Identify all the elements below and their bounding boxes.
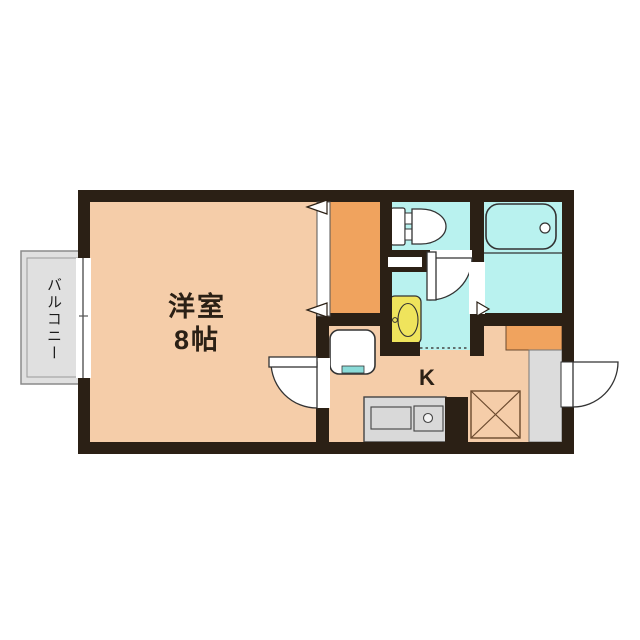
kitchen-counter-icon	[364, 397, 446, 442]
main-room-label: 洋室 8帖	[117, 291, 277, 357]
balcony-label: バルコニー	[44, 264, 64, 374]
main-room-label-line1: 洋室	[117, 291, 277, 324]
wall-counter-stub	[445, 397, 468, 442]
wall-washroom-stub	[380, 342, 420, 356]
washing-machine-pan-icon	[330, 330, 375, 374]
wall-closet-toilet	[380, 190, 392, 356]
kitchen-label: K	[407, 365, 447, 391]
entrance-floor	[529, 350, 562, 442]
wall-inset	[388, 257, 422, 267]
floor-plan-drawing	[0, 0, 640, 640]
wall-bottom	[78, 442, 574, 454]
washbasin-icon	[389, 296, 421, 344]
main-room-label-line2: 8帖	[117, 324, 277, 357]
toilet-icon	[391, 208, 446, 245]
floor-plan-page: 洋室 8帖 K バルコニー	[0, 0, 640, 640]
window	[76, 258, 91, 378]
wall-below-bathroom	[470, 313, 574, 326]
shoe-cabinet	[506, 322, 562, 350]
closet	[330, 196, 386, 316]
bathroom-floor	[478, 196, 568, 318]
